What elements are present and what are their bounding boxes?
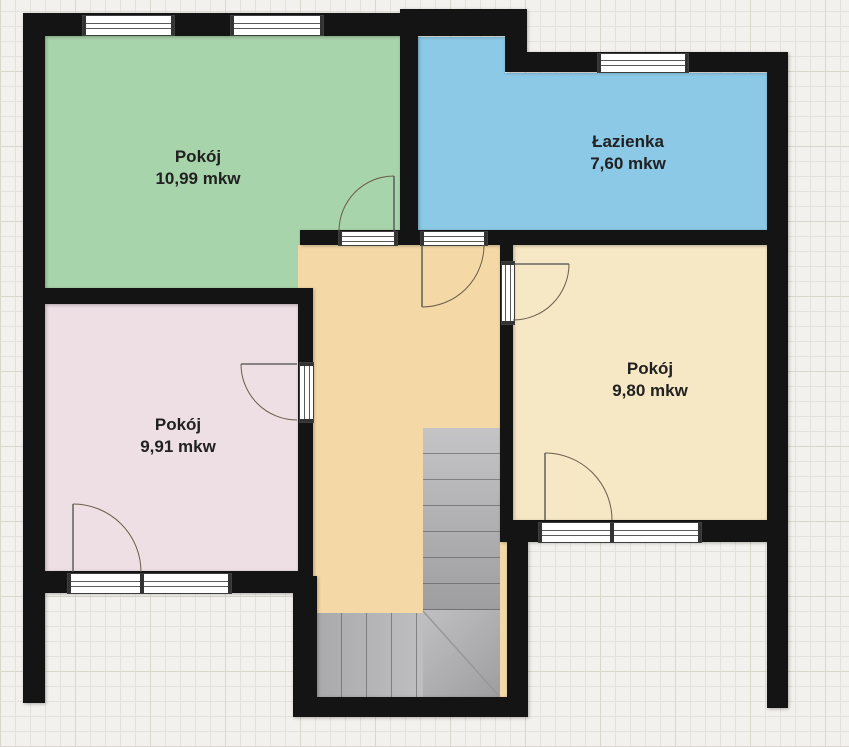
wall-left	[23, 13, 45, 703]
room-name: Pokój	[612, 358, 688, 380]
door-opening-pink-room	[299, 362, 314, 423]
room-name: Pokój	[155, 146, 240, 168]
window-mullion	[140, 574, 144, 593]
floor-plan: Pokój 10,99 mkw Łazienka 7,60 mkw Pokój …	[0, 0, 849, 747]
room-pink-label: Pokój 9,91 mkw	[140, 414, 216, 458]
window-pink-room	[67, 573, 232, 594]
wall-lower-hall-left	[293, 576, 317, 717]
door-opening-bathroom	[420, 231, 488, 246]
room-area: 9,91 mkw	[140, 436, 216, 458]
wall-lower-hall-right	[507, 540, 528, 717]
bathroom-label: Łazienka 7,60 mkw	[590, 131, 666, 175]
room-beige-label: Pokój 9,80 mkw	[612, 358, 688, 402]
door-opening-green-room	[338, 231, 398, 246]
wall-divider-green-pink	[23, 288, 313, 304]
room-area: 10,99 mkw	[155, 168, 240, 190]
wall-right	[767, 52, 788, 708]
window-mullion	[610, 523, 614, 542]
room-area: 7,60 mkw	[590, 153, 666, 175]
wall-divider-green-bathroom	[400, 36, 418, 231]
wall-top-left	[23, 13, 408, 36]
wall-divider-pink-hall	[298, 288, 313, 575]
door-opening-beige-room	[501, 261, 515, 325]
room-name: Pokój	[140, 414, 216, 436]
window-beige-room	[538, 522, 702, 543]
window-bathroom	[597, 53, 689, 73]
window-green-room-1	[82, 15, 175, 36]
wall-lower-hall-bottom	[293, 697, 528, 717]
window-green-room-2	[230, 15, 324, 36]
walls-layer	[0, 0, 849, 747]
room-name: Łazienka	[590, 131, 666, 153]
room-green-label: Pokój 10,99 mkw	[155, 146, 240, 190]
wall-top-bathroom	[400, 9, 527, 36]
room-area: 9,80 mkw	[612, 380, 688, 402]
